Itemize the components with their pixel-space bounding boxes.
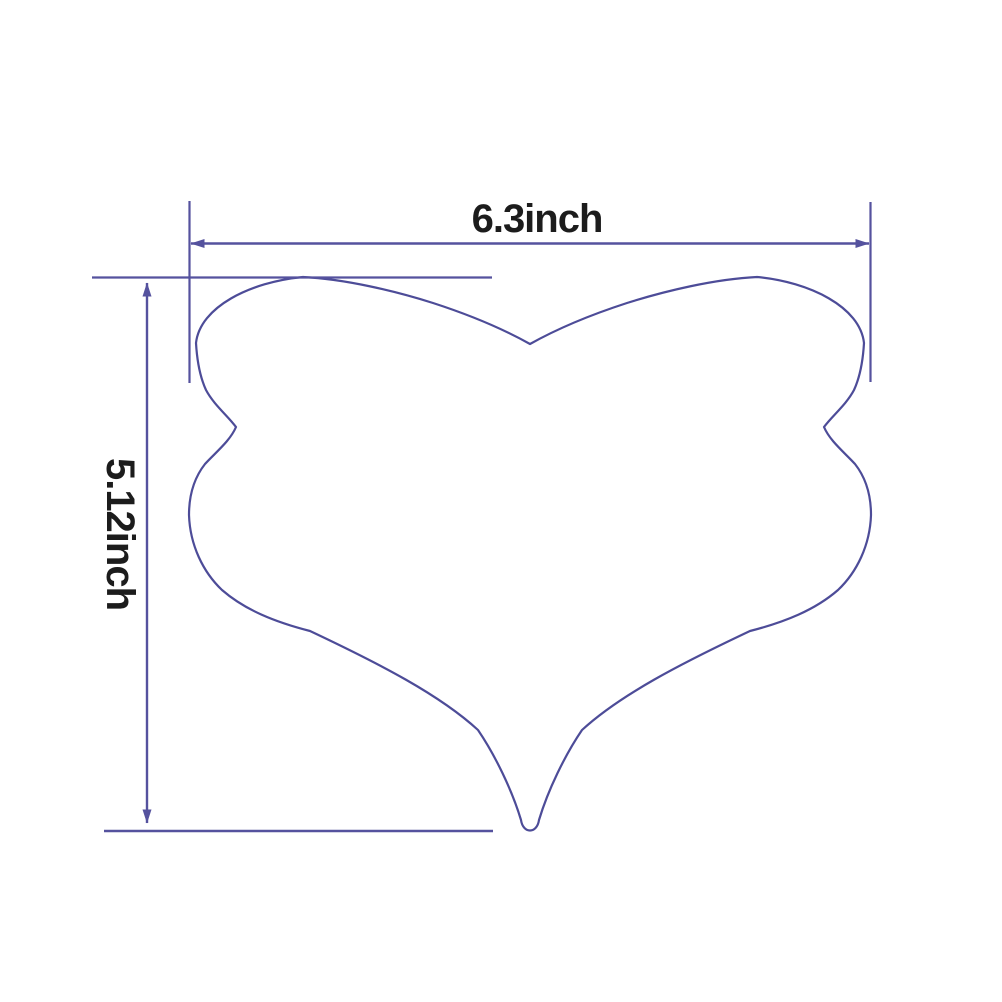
shape-outline [189, 277, 871, 831]
dimension-drawing-canvas: 6.3inch 5.12inch [0, 0, 1002, 1002]
width-dimension-label: 6.3inch [437, 198, 637, 240]
height-dimension-label: 5.12inch [99, 434, 141, 634]
dimension-drawing [0, 0, 1002, 1002]
